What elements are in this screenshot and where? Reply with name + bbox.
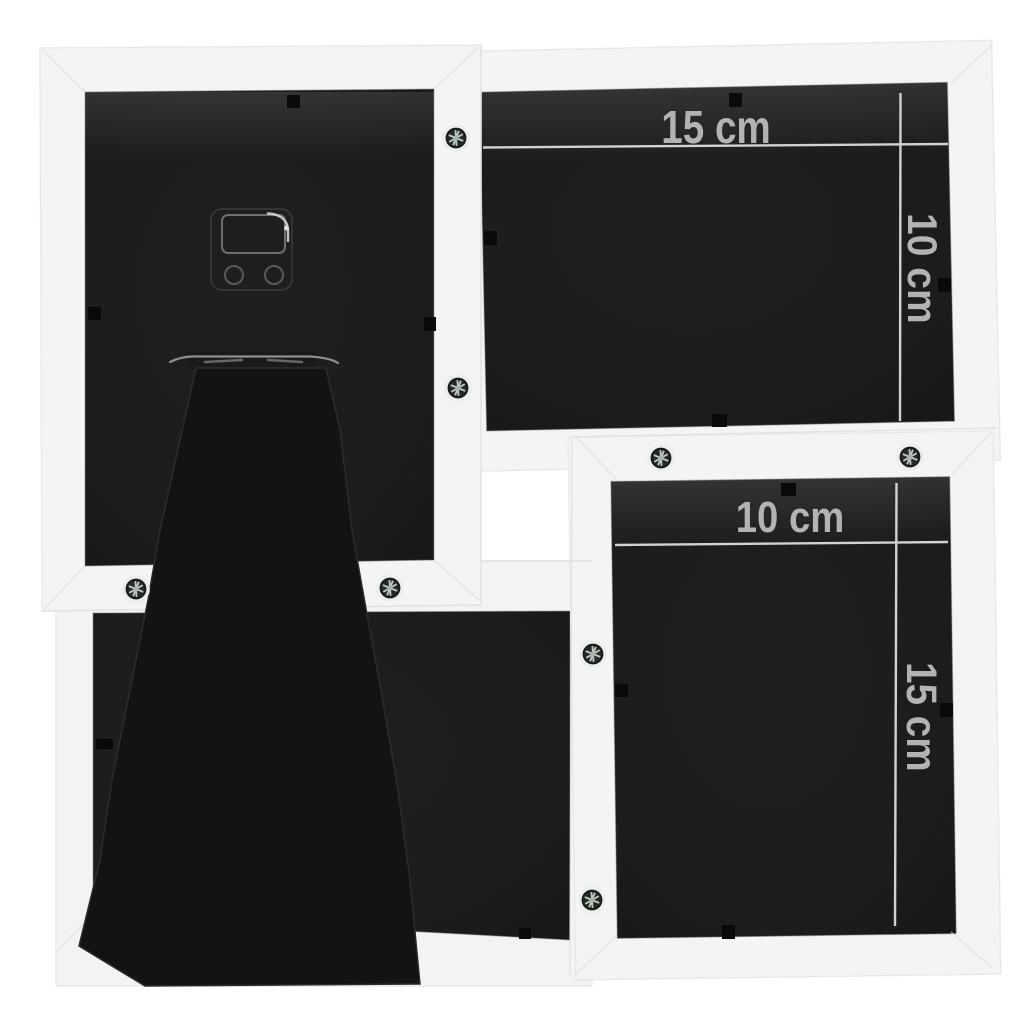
- svg-text:15 cm: 15 cm: [661, 102, 771, 153]
- svg-text:15 cm: 15 cm: [898, 662, 946, 772]
- svg-text:10 cm: 10 cm: [899, 213, 947, 324]
- svg-text:10 cm: 10 cm: [736, 493, 844, 542]
